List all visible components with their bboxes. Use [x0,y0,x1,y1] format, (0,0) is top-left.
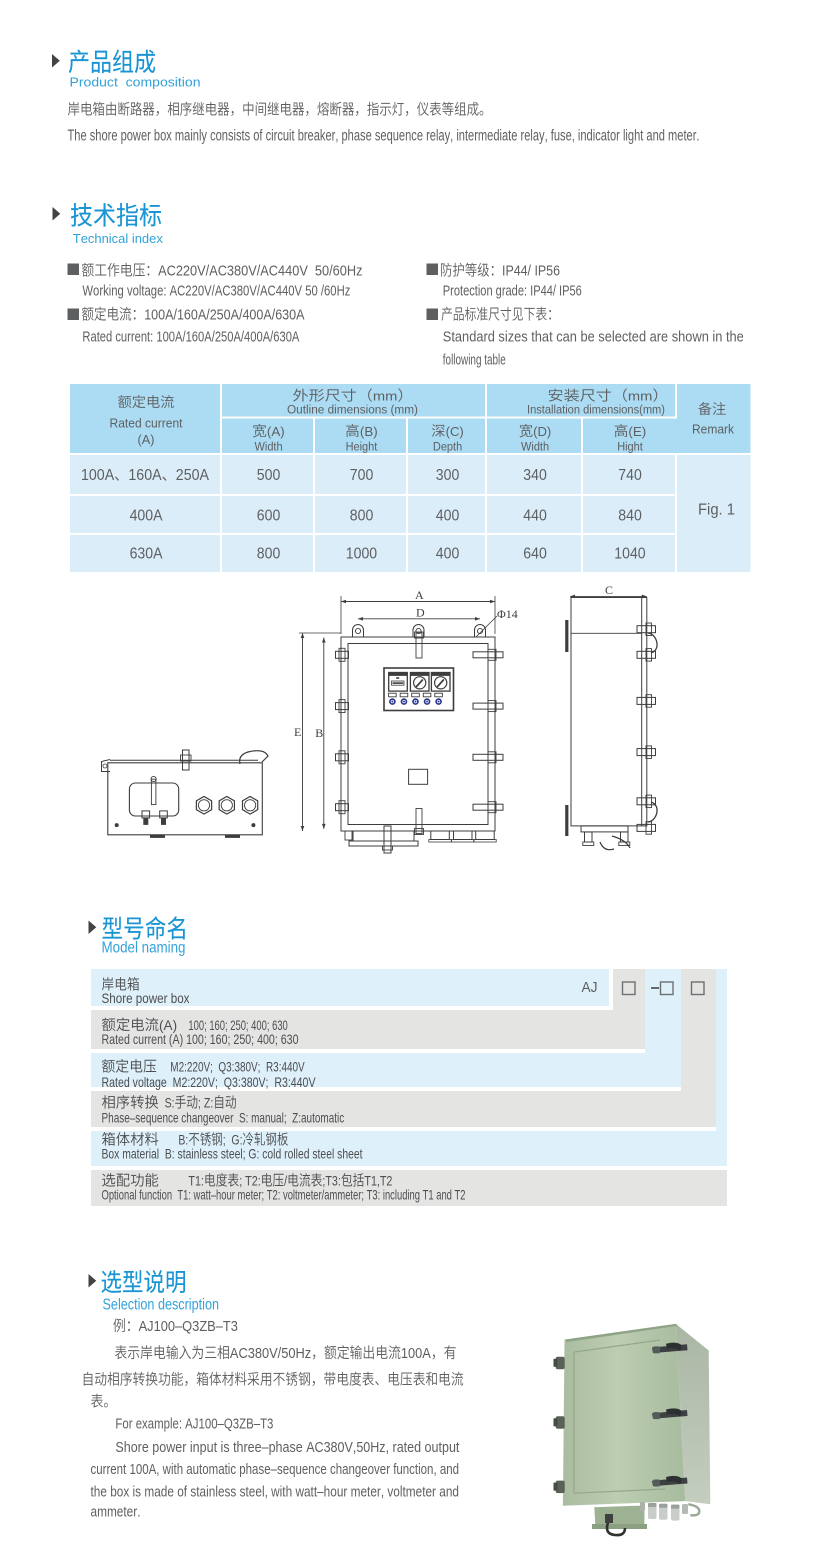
svg-text:AC380V/50Hz: AC380V/50Hz [230,1345,311,1362]
svg-text:Rated current: 100A/160A/250A/: Rated current: 100A/160A/250A/400A/630A [82,330,299,346]
svg-text:630A: 630A [130,546,163,563]
svg-text:1000: 1000 [346,546,377,563]
svg-text:Width: Width [255,440,283,454]
svg-text:340: 340 [523,467,547,484]
svg-text:Shore power box: Shore power box [102,990,190,1006]
svg-text:Width: Width [521,440,549,454]
svg-text:100A: 100A [81,467,114,484]
svg-text:C: C [605,583,613,597]
svg-text:(E): (E) [628,424,646,439]
svg-text:(A): (A) [267,424,285,439]
svg-text:Installation dimensions(mm): Installation dimensions(mm) [527,403,665,417]
svg-text:(B): (B) [360,424,378,439]
svg-text:S:: S: [165,1096,175,1111]
svg-text:(D): (D) [533,424,551,439]
svg-text:100A: 100A [401,1345,432,1362]
svg-text:Rated voltage M2:220V; Q3:38: Rated voltage M2:220V; Q3:380V; R3:440V [102,1074,316,1090]
svg-text:ammeter.: ammeter. [91,1505,141,1521]
svg-text:For example: AJ100–Q3ZB–T3: For example: AJ100–Q3ZB–T3 [115,1417,273,1433]
svg-text:Selection description: Selection description [103,1297,220,1314]
svg-text:Protection grade: IP44/ IP56: Protection grade: IP44/ IP56 [443,284,582,300]
svg-text:M2:220V; Q3:380V; R3:440V: M2:220V; Q3:380V; R3:440V [170,1060,304,1075]
svg-text:100A/160A/250A/400A/630A: 100A/160A/250A/400A/630A [144,307,305,324]
svg-text:Fig. 1: Fig. 1 [698,502,735,519]
svg-text:Technical index: Technical index [73,231,164,246]
svg-text:Hight: Hight [617,440,643,454]
svg-text:Remark: Remark [692,423,735,437]
svg-text:440: 440 [523,508,547,525]
svg-text:Rated current (A) 100; 160; 25: Rated current (A) 100; 160; 250; 400; 63… [102,1031,299,1047]
svg-text:500: 500 [257,467,281,484]
svg-text:400: 400 [436,508,460,525]
svg-text:Optional function T1: watt–ho: Optional function T1: watt–hour meter; T… [102,1187,466,1203]
svg-text:mm: mm [628,389,653,404]
svg-text:A: A [415,588,424,602]
svg-text:840: 840 [618,508,642,525]
svg-text:800: 800 [350,508,374,525]
svg-text:; Z:: ; Z: [198,1096,213,1111]
svg-text:Shore power input is three–pha: Shore power input is three–phase AC380V,… [115,1440,459,1456]
svg-text:B: B [315,726,323,740]
svg-text:Model naming: Model naming [102,940,186,957]
svg-text:Phase–sequence changeover S:: Phase–sequence changeover S: manual; Z:a… [102,1110,345,1126]
svg-text:AJ: AJ [582,979,598,996]
svg-text:160A: 160A [128,467,161,484]
svg-text:Φ14: Φ14 [497,607,518,621]
svg-text:E: E [294,725,301,739]
svg-text:Product composition: Product composition [70,75,201,90]
svg-text:Rated current: Rated current [110,417,183,431]
svg-text:250A: 250A [176,467,209,484]
svg-text:(C): (C) [446,424,464,439]
svg-text:600: 600 [257,508,281,525]
svg-text:AC220V/AC380V/AC440V 50/60Hz: AC220V/AC380V/AC440V 50/60Hz [158,263,362,280]
svg-text:The shore power box mainly con: The shore power box mainly consists of c… [68,128,700,145]
svg-text:1040: 1040 [614,546,645,563]
svg-text:700: 700 [350,467,374,484]
svg-text:800: 800 [257,546,281,563]
svg-text:740: 740 [618,467,642,484]
svg-text:D: D [416,605,425,619]
svg-text:Box material B: stainless ste: Box material B: stainless steel; G: cold… [102,1146,363,1162]
svg-text:400A: 400A [130,508,163,525]
svg-text:640: 640 [523,546,547,563]
svg-text:Outline dimensions (mm): Outline dimensions (mm) [287,403,418,417]
svg-text:following table: following table [443,353,506,369]
svg-text:Standard sizes that can be sel: Standard sizes that can be selected are … [443,330,744,346]
svg-text:400: 400 [436,546,460,563]
svg-text:(A): (A) [138,433,155,447]
svg-text:current 100A, with automatic p: current 100A, with automatic phase–seque… [91,1462,460,1478]
svg-text:AJ100–Q3ZB–T3: AJ100–Q3ZB–T3 [139,1318,238,1335]
svg-text:Height: Height [346,440,378,454]
svg-text:IP44/ IP56: IP44/ IP56 [502,263,560,280]
svg-text:300: 300 [436,467,460,484]
svg-text:Depth: Depth [433,440,462,454]
svg-text:the box is made of stainless s: the box is made of stainless steel, with… [91,1485,460,1501]
svg-text:Working voltage: AC220V/AC380V: Working voltage: AC220V/AC380V/AC440V 50… [82,284,350,300]
svg-text:mm: mm [373,389,398,404]
